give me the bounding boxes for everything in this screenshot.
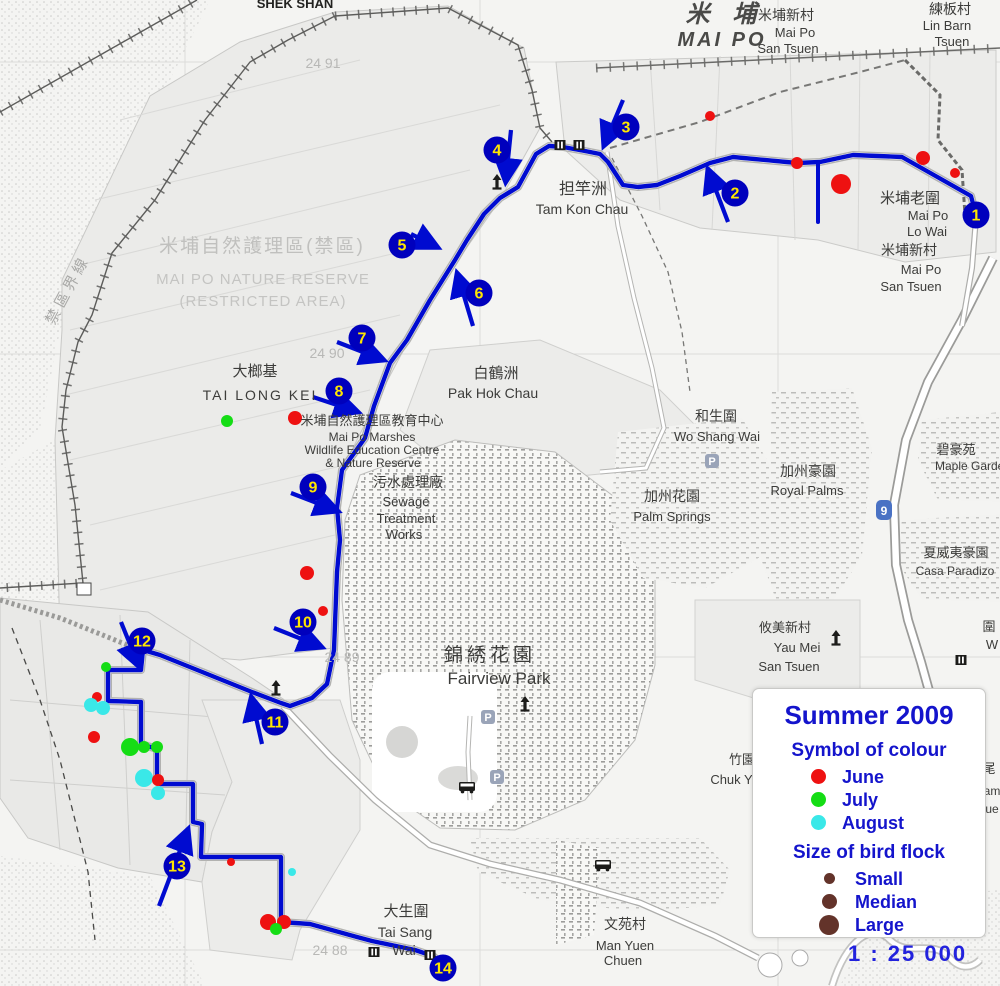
map-label: 夏威夷豪園 [923,545,988,560]
waypoint-number: 2 [731,186,740,203]
map-label: Tam Kon Chau [536,201,629,217]
map-label: Works [386,527,423,542]
waypoint-number: 8 [335,384,344,401]
map-label: Palm Springs [633,509,711,524]
map-label: Maple Garden [935,459,1000,473]
june-dot-icon [811,769,826,784]
parking-icon: P [705,454,719,468]
map-label: 米埔老圍 [880,190,940,207]
map-label: Sewage [383,494,430,509]
legend-row-june: June [811,766,985,787]
map-label: 練板村 [929,1,971,17]
map-legend: Summer 2009 Symbol of colour June July A… [752,688,986,938]
map-label: Wo Shang Wai [674,429,760,444]
map-scale: 1 : 25 000 [848,941,967,967]
legend-size-rows: Small Median Large [753,868,985,935]
map-label: Treatment [377,511,436,526]
map-label: MAI PO [677,29,766,51]
map-label: 加州豪園 [780,463,836,479]
map-label: 米 埔 [686,1,765,28]
june-label: June [842,768,884,786]
observation-dot-july [221,415,233,427]
map-label: 米埔新村 [758,7,814,23]
observation-dot-july [101,662,111,672]
map-label: MAI PO NATURE RESERVE [156,271,370,288]
map-label: 担竿洲 [559,180,607,198]
july-label: July [842,791,878,809]
map-label: (RESTRICTED AREA) [179,293,346,310]
observation-dot-june [916,151,930,165]
svg-text:P: P [493,772,500,784]
observation-dot-june [705,111,715,121]
legend-row-small: Small [819,868,985,889]
map-label: 米埔自然護理區教育中心 [300,413,443,428]
legend-row-median: Median [819,891,985,912]
map-label: Mai Po [901,262,941,277]
waypoint-number: 12 [133,634,151,651]
roundabout-1 [758,953,782,977]
legend-row-july: July [811,789,985,810]
gate-icon [555,140,566,150]
median-flock-dot-icon [822,894,837,909]
map-label: San Tsuen [880,279,941,294]
svg-text:P: P [484,712,491,724]
map-label: Pak Hok Chau [448,385,538,401]
parking-icon: P [490,770,504,784]
boundary-gate-square [77,583,91,595]
map-label: 大榔基 [232,363,277,380]
map-label: 24 88 [312,942,347,958]
parking-icon: P [481,710,495,724]
map-label: Royal Palms [771,483,844,498]
legend-row-august: August [811,812,985,833]
waypoint-number: 6 [475,286,484,303]
fairview-pond-1 [386,726,418,758]
waypoint-number: 11 [267,715,284,732]
map-label: Tsuen [935,34,970,49]
legend-size-heading: Size of bird flock [753,842,985,864]
map-label: 污水處理廠 [373,474,443,490]
waypoint-number: 14 [434,961,452,978]
gate-icon [574,140,585,150]
map-label: ue [985,802,999,816]
map-label: Mai Po [775,25,815,40]
map-label: Man Yuen [596,938,654,953]
observation-dot-june [831,174,851,194]
map-label: San Tsuen [758,659,819,674]
legend-title: Summer 2009 [753,700,985,731]
map-label: 圍 [982,619,995,634]
map-label: am [984,784,1000,798]
august-dot-icon [811,815,826,830]
map-label: Fairview Park [448,669,551,688]
map-label: & Nature Reserve [325,456,421,470]
waypoint-6: 6 [466,280,493,307]
waypoint-number: 5 [398,238,407,255]
map-label: 24 89 [324,649,359,665]
legend-month-rows: June July August [753,766,985,833]
svg-text:P: P [708,456,715,468]
waypoint-5: 5 [389,232,416,259]
observation-dot-june [318,606,328,616]
observation-dot-july [138,741,150,753]
observation-dot-june [88,731,100,743]
waypoint-14: 14 [430,955,457,982]
waypoint-3: 3 [613,114,640,141]
waypoint-number: 1 [972,208,981,225]
map-label: Mai Po Marshes [329,430,416,444]
waypoint-number: 13 [168,859,186,876]
observation-dot-june [152,774,164,786]
map-label: 24 91 [305,55,340,71]
roundabout-2 [792,950,808,966]
large-flock-label: Large [855,916,904,934]
waypoint-number: 4 [493,143,502,160]
observation-dot-july [121,738,139,756]
map-label: 錦綉花園 [444,644,536,666]
shield-icon: 9 [876,500,892,520]
waypoint-11: 11 [262,709,289,736]
map-label: 24 90 [309,345,344,361]
waypoint-number: 10 [294,615,312,632]
map-label: Lin Barn [923,18,971,33]
map-label: 白鶴洲 [473,365,518,382]
waypoint-7: 7 [349,325,376,352]
map-label: TAI LONG KEI [203,387,318,403]
legend-row-large: Large [819,914,985,935]
observation-dot-august [96,701,110,715]
observation-dot-august [84,698,98,712]
waypoint-number: 9 [309,480,318,497]
waypoint-9: 9 [300,474,327,501]
median-flock-label: Median [855,893,917,911]
waypoint-12: 12 [129,628,156,655]
map-label: Wildlife Education Centre [305,443,440,457]
large-flock-dot-icon [819,915,839,935]
waypoint-number: 3 [622,120,631,137]
map-label: W [986,637,999,652]
waypoint-4: 4 [484,137,511,164]
july-dot-icon [811,792,826,807]
map-label: Chuen [604,953,642,968]
waypoint-8: 8 [326,378,353,405]
observation-dot-august [151,786,165,800]
map-label: Yau Mei [774,640,821,655]
small-flock-dot-icon [824,873,835,884]
map-label: Wai [392,942,416,958]
observation-dot-august [135,769,153,787]
map-label: 加州花園 [644,488,700,504]
observation-dot-july [151,741,163,753]
small-flock-label: Small [855,870,903,888]
observation-dot-june [300,566,314,580]
waypoint-2: 2 [722,180,749,207]
svg-text:9: 9 [881,504,888,518]
observation-dot-june [791,157,803,169]
observation-dot-july [270,923,282,935]
observation-dot-june [950,168,960,178]
gate-icon [369,947,380,957]
waypoint-13: 13 [164,853,191,880]
map-label: 碧豪苑 [936,442,975,457]
waypoint-number: 7 [358,331,367,348]
map-label: SHEK SHAN [257,0,334,11]
observation-dot-august [288,868,296,876]
mai-po-survey-map: { "legend": { "title": "Summer 2009", "c… [0,0,1000,986]
observation-dot-june [227,858,235,866]
map-label: Tai Sang [378,924,432,940]
legend-colour-heading: Symbol of colour [753,740,985,762]
waypoint-10: 10 [290,609,317,636]
map-label: 米埔新村 [881,242,937,258]
waypoint-1: 1 [963,202,990,229]
map-label: Casa Paradizo [916,564,995,578]
map-label: 大生圍 [383,903,428,920]
map-label: Lo Wai [907,224,947,239]
map-label: Mai Po [908,208,948,223]
map-label: 和生圍 [695,408,737,424]
map-label: San Tsuen [757,41,818,56]
map-label: 文苑村 [604,916,646,932]
gate-icon [956,655,967,665]
map-label: 攸美新村 [759,620,811,635]
map-label: 米埔自然護理區(禁區) [159,235,365,257]
august-label: August [842,814,904,832]
